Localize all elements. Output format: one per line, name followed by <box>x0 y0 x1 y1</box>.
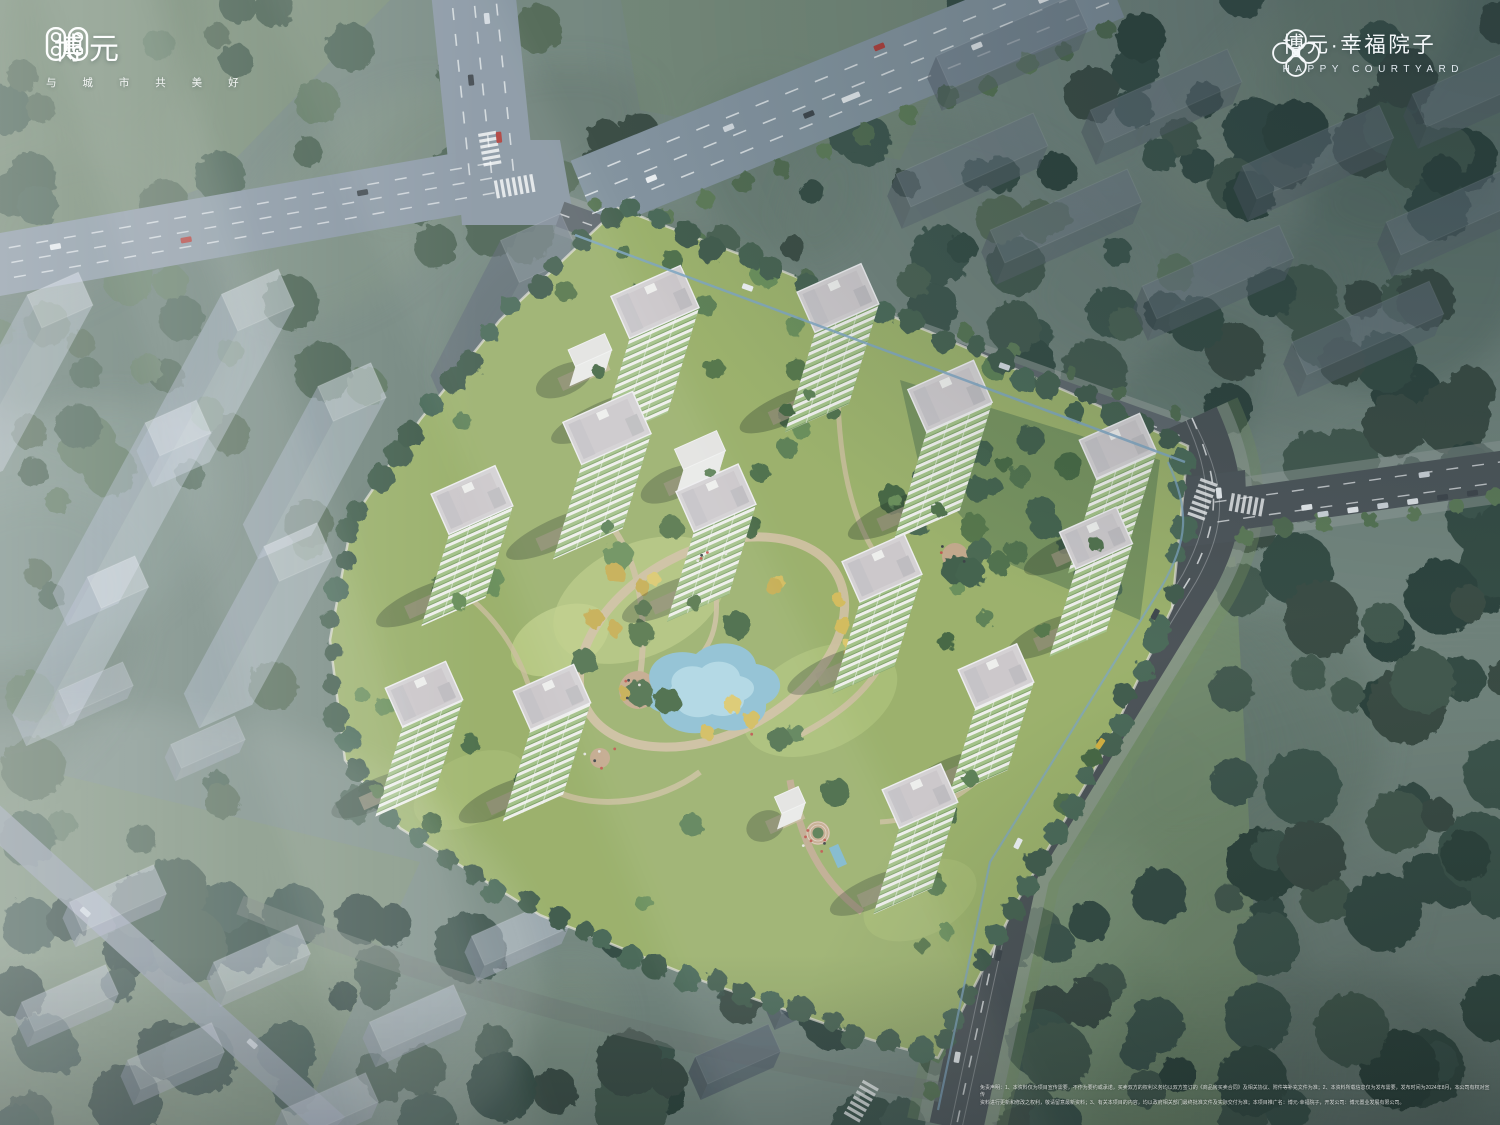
disclaimer-line-2: 资料进行更新和修改之权利，敬请留意最新资料；3、有关本项目的内容，均以政府相关部… <box>980 1100 1492 1108</box>
disclaimer-text: 免责声明：1、本资料仅为项目宣传需要，不作为要约或承诺，买卖双方的权利义务均以双… <box>980 1085 1492 1108</box>
aerial-scene <box>0 0 1500 1125</box>
aerial-render-poster: 博元 与 城 市 共 美 好 博元·幸福院子 HAPPY COURTYARD 免… <box>0 0 1500 1125</box>
brand-tagline: 与 城 市 共 美 好 <box>46 75 250 90</box>
disclaimer-line-1: 免责声明：1、本资料仅为项目宣传需要，不作为要约或承诺，买卖双方的权利义务均以双… <box>980 1085 1492 1100</box>
light-haze-overlays <box>0 0 1500 1125</box>
brand-logo: 博元 与 城 市 共 美 好 <box>44 24 250 90</box>
project-logo: 博元·幸福院子 HAPPY COURTYARD <box>1271 28 1464 75</box>
